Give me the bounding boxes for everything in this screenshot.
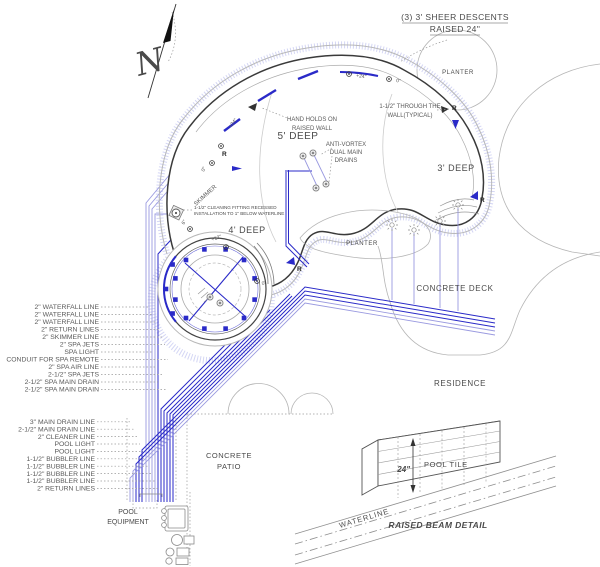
cleaning-fitting-line-2: INSTALLATION TO 1" BELOW WATERLINE [194, 211, 284, 216]
spa-line-label: 2" WATERFALL LINE [35, 312, 100, 319]
r-marker-spa: R [297, 266, 302, 273]
through-wall-line-1: 1-1/2" THROUGH THE [379, 104, 440, 110]
anti-vortex-line-3: DRAINS [335, 158, 358, 164]
concrete-deck-label: CONCRETE DECK [416, 284, 493, 293]
spa-line-label: 2-1/2" SPA MAIN DRAIN [25, 379, 100, 386]
anti-vortex-line-2: DUAL MAIN [330, 150, 362, 156]
spa-line-label: 2" SKIMMER LINE [42, 334, 99, 341]
hand-holds-line-2: RAISED WALL [292, 126, 333, 132]
planter-label-mid: PLANTER [346, 241, 378, 247]
pool-line-label: POOL LIGHT [54, 441, 95, 448]
pool-line-label: 1-1/2" BUBBLER LINE [26, 456, 95, 463]
north-arrow: N [130, 4, 176, 98]
cleaning-fitting-line-1: 1-1/2" CLEANING FITTING RECESSED [194, 205, 277, 210]
pool-line-label: 1-1/2" BUBBLER LINE [26, 478, 95, 485]
beam-solid [362, 421, 500, 495]
spa-line-label: 2" SPA AIR LINE [48, 364, 99, 371]
spa-line-label: 2-1/2" SPA JETS [48, 372, 99, 379]
pool-tile-label: POOL TILE [424, 460, 468, 469]
depth-label-5ft: 5' DEEP [278, 131, 319, 142]
plan-canvas: N (3) 3' SHEER DESCENTS RAISED 24" 5' DE… [0, 0, 600, 567]
depth-label-4ft: 4' DEEP [228, 225, 265, 235]
patio-label-line-1: CONCRETE [206, 451, 252, 460]
pool-plan-drawing: N (3) 3' SHEER DESCENTS RAISED 24" 5' DE… [0, 0, 600, 567]
title-line-1: (3) 3' SHEER DESCENTS [401, 12, 509, 22]
deck-scallops [228, 383, 333, 414]
pool-line-label: 2-1/2" MAIN DRAIN LINE [18, 426, 95, 433]
depth-label-3ft: 3' DEEP [437, 163, 474, 173]
raised-beam-detail: 24" POOL TILE WATERLINE RAISED BEAM DETA… [295, 421, 556, 564]
r-marker-west: R [222, 151, 227, 158]
spa-line-label: 2" RETURN LINES [41, 327, 99, 334]
patio-boundary [187, 414, 333, 566]
pool-line-label: 2" RETURN LINES [37, 486, 95, 493]
pool-line-label: 2" CLEANER LINE [38, 434, 96, 441]
through-wall-line-2: WALL(TYPICAL) [387, 113, 432, 119]
anti-vortex-line-1: ANTI-VORTEX [326, 142, 366, 148]
spa-line-label: 2" WATERFALL LINE [35, 304, 100, 311]
equipment-label-line-2: EQUIPMENT [107, 519, 149, 526]
residence-label: RESIDENCE [434, 379, 486, 388]
r-marker-top: R [452, 105, 457, 112]
residence-outline [378, 246, 600, 355]
pool-line-labels: 3" MAIN DRAIN LINE 2-1/2" MAIN DRAIN LIN… [18, 419, 158, 493]
detail-title: RAISED BEAM DETAIL [388, 520, 487, 530]
equipment-label-line-1: POOL [118, 509, 138, 516]
patio-label-line-2: PATIO [217, 462, 241, 471]
pool-equipment [140, 494, 194, 565]
beam-height-label: 24" [396, 465, 410, 474]
spa-line-label: CONDUIT FOR SPA REMOTE [6, 357, 99, 364]
spa [158, 232, 274, 346]
spa-line-label: 2" WATERFALL LINE [35, 319, 100, 326]
spa-line-label: 2" SPA JETS [60, 342, 100, 349]
r-marker-east: R [480, 197, 485, 204]
pool-line-label: POOL LIGHT [54, 449, 95, 456]
pool-line-label: 3" MAIN DRAIN LINE [30, 419, 96, 426]
planter-label-top: PLANTER [442, 70, 474, 76]
spa-line-label: 2-1/2" SPA MAIN DRAIN [25, 387, 100, 394]
waterline-label: WATERLINE [338, 507, 390, 530]
title-line-2: RAISED 24" [430, 24, 480, 34]
pool-line-label: 1-1/2" BUBBLER LINE [26, 471, 95, 478]
hand-holds-line-1: HAND HOLDS ON [287, 117, 337, 123]
pool-line-label: 1-1/2" BUBBLER LINE [26, 463, 95, 470]
spa-line-label: SPA LIGHT [64, 349, 99, 356]
deck-outline [498, 64, 600, 256]
spa-line-labels: 2" WATERFALL LINE 2" WATERFALL LINE 2" W… [6, 304, 168, 394]
sheet-title: (3) 3' SHEER DESCENTS RAISED 24" [401, 12, 509, 35]
